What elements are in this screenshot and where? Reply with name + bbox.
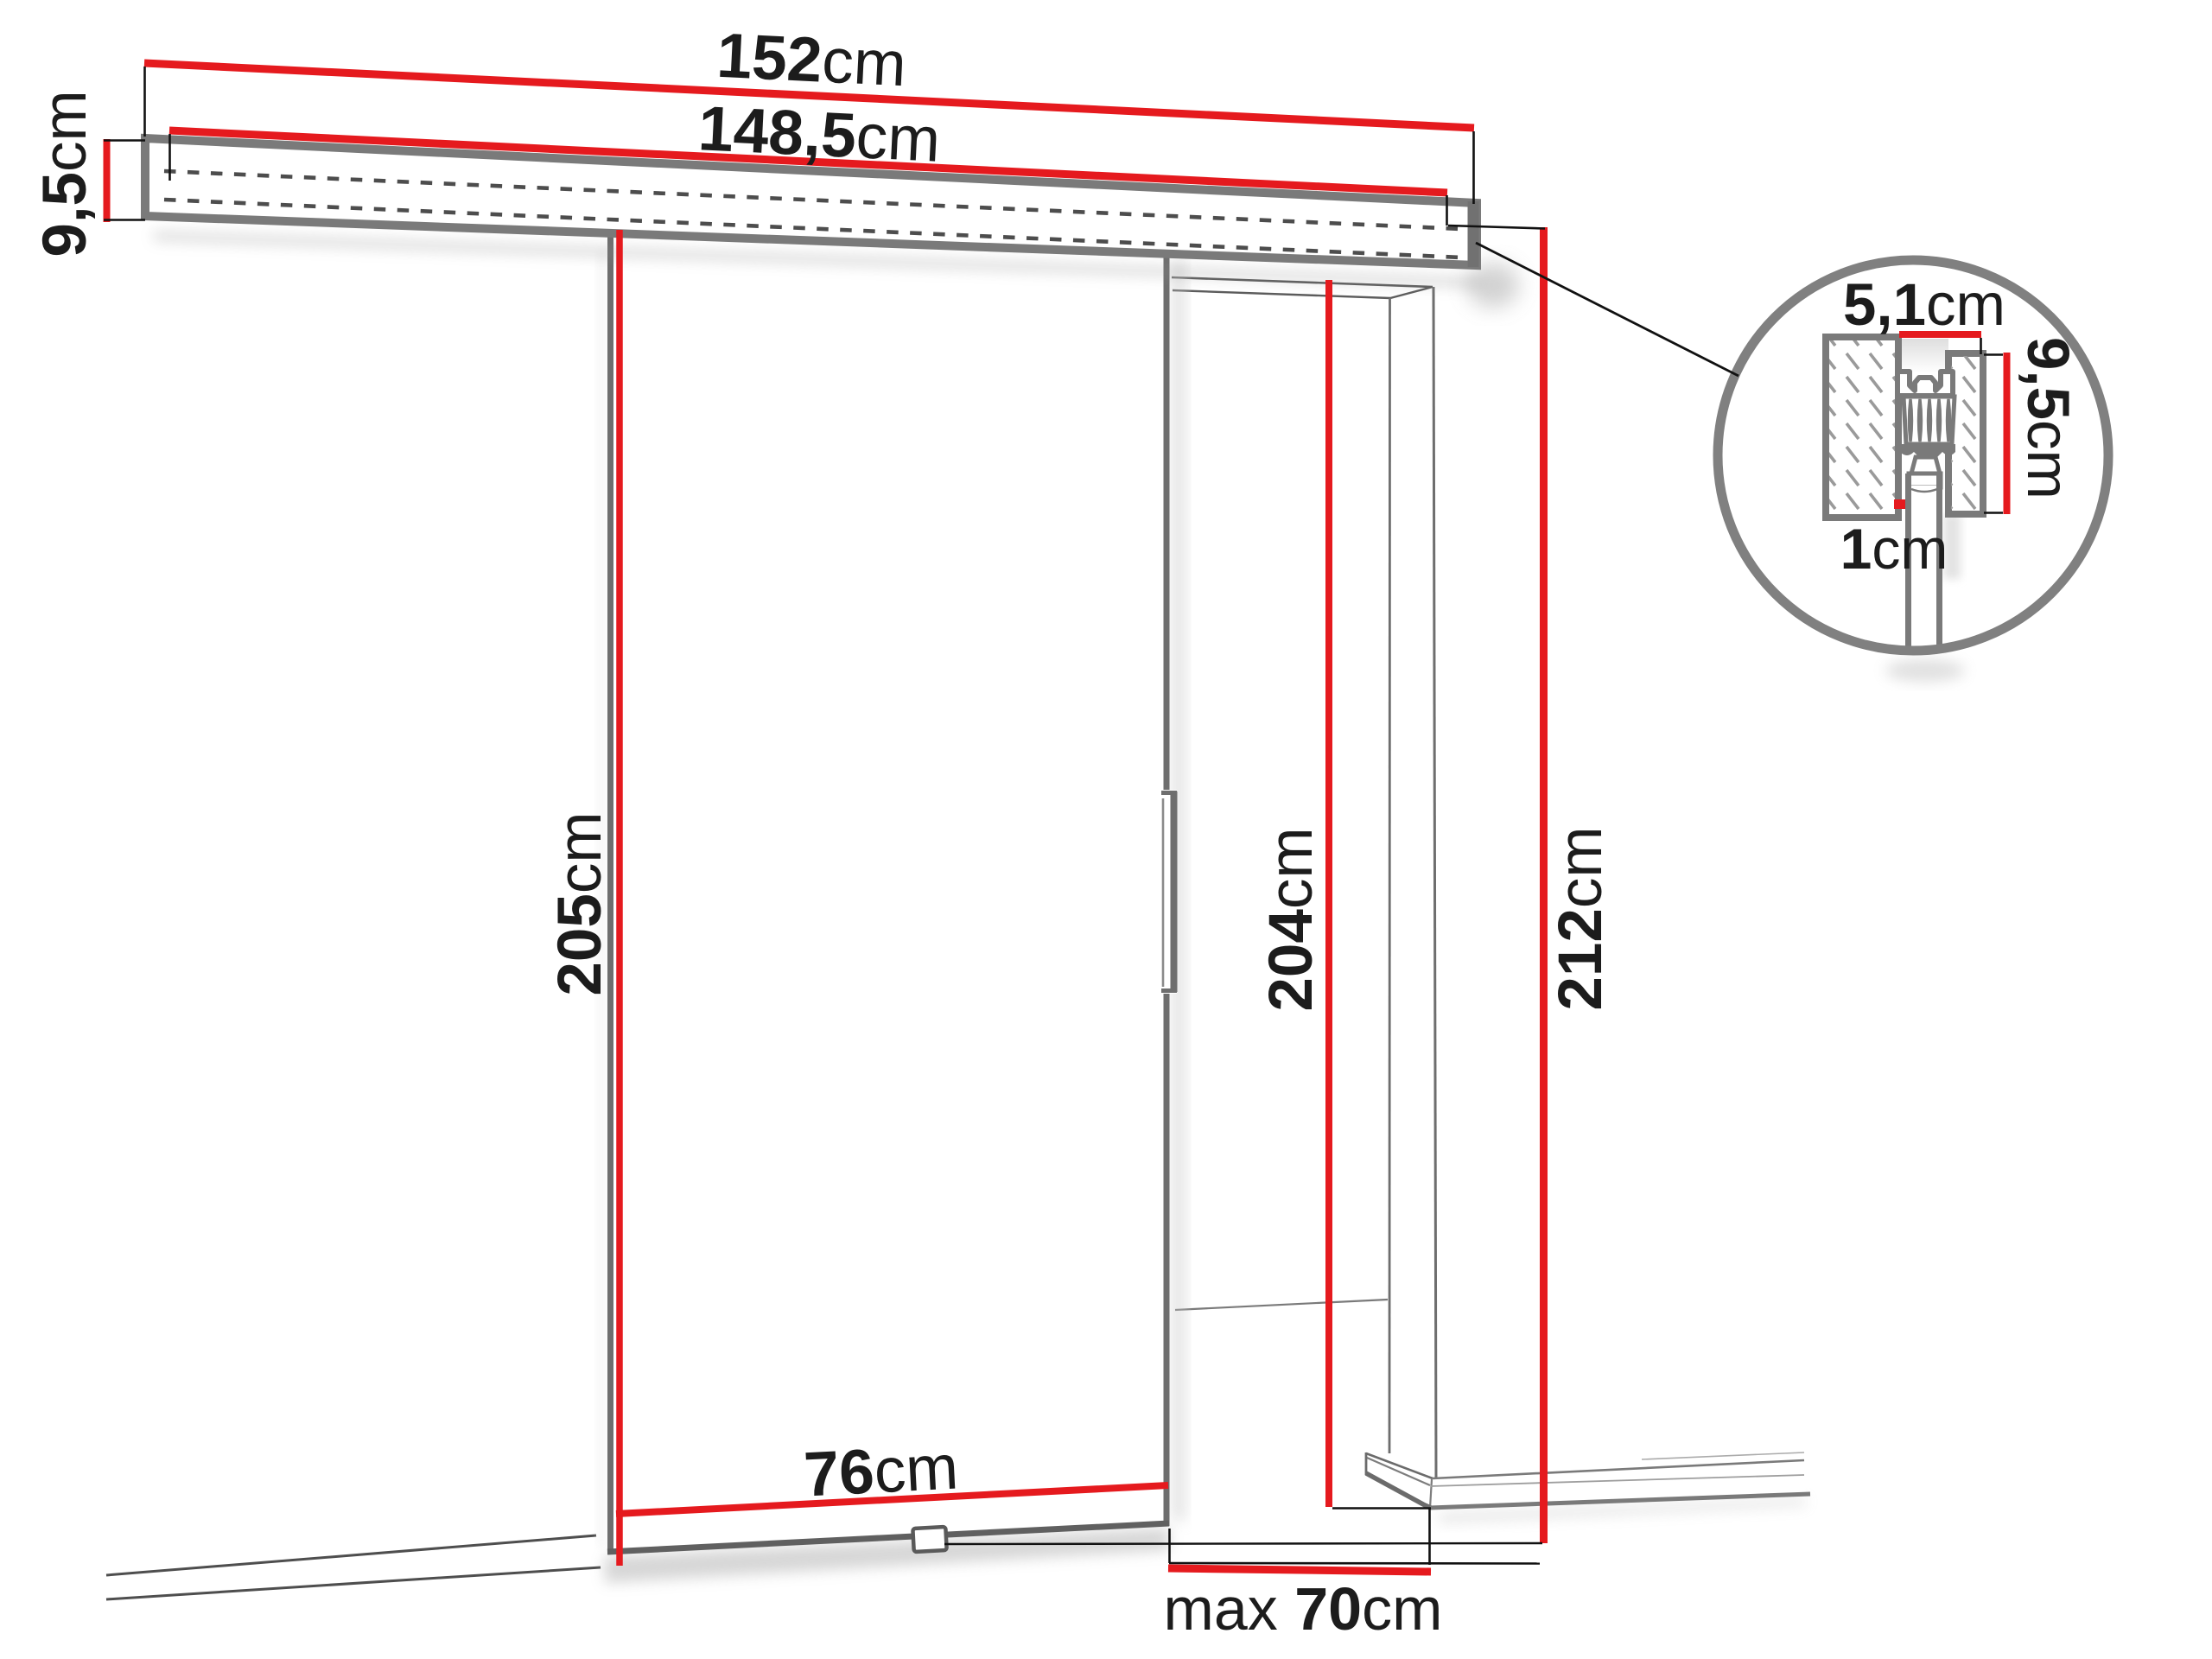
svg-text:205cm: 205cm — [546, 811, 614, 995]
svg-text:9,5cm: 9,5cm — [31, 90, 99, 257]
svg-text:5,1cm: 5,1cm — [1843, 271, 2005, 338]
svg-text:152cm: 152cm — [715, 21, 908, 100]
svg-text:212cm: 212cm — [1547, 826, 1615, 1010]
svg-text:148,5cm: 148,5cm — [696, 93, 942, 175]
svg-text:204cm: 204cm — [1257, 827, 1325, 1011]
svg-text:max 70cm: max 70cm — [1164, 1575, 1443, 1643]
svg-text:9,5cm: 9,5cm — [2015, 337, 2082, 499]
svg-text:1cm: 1cm — [1840, 517, 1948, 581]
svg-text:76cm: 76cm — [803, 1433, 960, 1510]
